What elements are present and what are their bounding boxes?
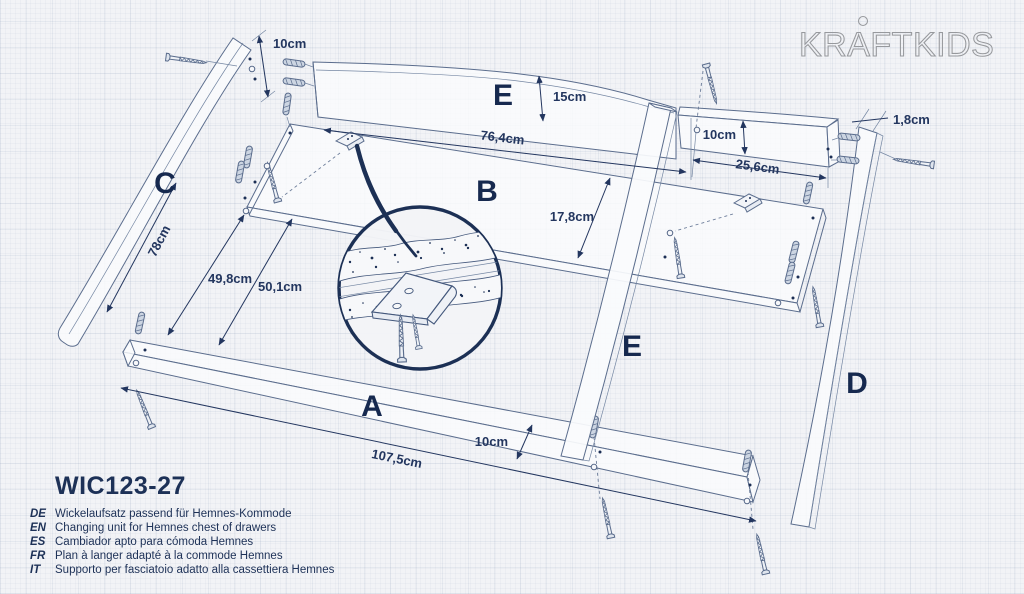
translation-text: Supporto per fasciatoio adatto alla cass… xyxy=(55,563,334,577)
logo-teepee-ring-icon xyxy=(859,17,868,26)
translation-text: Plan à langer adapté à la commode Hemnes xyxy=(55,549,283,563)
translation-text: Changing unit for Hemnes chest of drawer… xyxy=(55,521,276,535)
dowel-icon xyxy=(283,58,306,67)
screw-icon xyxy=(753,533,770,575)
translation-list: DE Wickelaufsatz passend für Hemnes-Komm… xyxy=(30,507,334,577)
dim-label: 10cm xyxy=(703,127,736,142)
dim-label: 10cm xyxy=(475,434,508,449)
translation-text: Cambiador apto para cómoda Hemnes xyxy=(55,535,253,549)
product-code: WIC123-27 xyxy=(55,472,334,501)
language-code: ES xyxy=(30,535,55,549)
screw-icon xyxy=(599,497,615,539)
product-info: WIC123-27 DE Wickelaufsatz passend für H… xyxy=(30,472,334,577)
part-label-d: D xyxy=(846,367,868,400)
language-code: EN xyxy=(30,521,55,535)
language-code: FR xyxy=(30,549,55,563)
dowel-icon xyxy=(838,133,861,141)
part-label-a: A xyxy=(361,390,383,423)
dim-label: 49,8cm xyxy=(208,271,252,286)
dim-label: 10cm xyxy=(273,36,306,51)
part-label-e-top: E xyxy=(493,79,513,112)
part-label-e-mid: E xyxy=(622,330,642,363)
translation-row-es: ES Cambiador apto para cómoda Hemnes xyxy=(30,535,334,549)
translation-text: Wickelaufsatz passend für Hemnes-Kommode xyxy=(55,507,292,521)
translation-row-it: IT Supporto per fasciatoio adatto alla c… xyxy=(30,563,334,577)
language-code: DE xyxy=(30,507,55,521)
dowel-icon xyxy=(283,77,306,86)
dowel-icon xyxy=(282,93,291,116)
dim-label: 15cm xyxy=(553,89,586,104)
dim-label: 1,8cm xyxy=(893,112,930,127)
dowel-icon xyxy=(135,312,145,335)
screw-icon xyxy=(809,286,824,328)
dimension-1-8cm: 1,8cm xyxy=(852,109,930,131)
translation-row-fr: FR Plan à langer adapté à la commode Hem… xyxy=(30,549,334,563)
language-code: IT xyxy=(30,563,55,577)
dim-label: 78cm xyxy=(145,223,174,259)
dim-label: 17,8cm xyxy=(550,209,594,224)
translation-row-en: EN Changing unit for Hemnes chest of dra… xyxy=(30,521,334,535)
dowel-icon xyxy=(235,161,245,184)
screw-icon xyxy=(165,53,207,66)
part-label-b: B xyxy=(476,175,498,208)
blueprint-page: 10cm 15cm 76,4cm 10cm 25,6cm 1,8cm 17,8c… xyxy=(0,0,1024,594)
brand-logo: KRAFTKIDS xyxy=(799,17,994,65)
dimension-49-8cm: 49,8cm xyxy=(168,215,252,335)
translation-row-de: DE Wickelaufsatz passend für Hemnes-Komm… xyxy=(30,507,334,521)
brand-logo-text: KRAFTKIDS xyxy=(799,26,994,64)
screw-icon xyxy=(893,156,935,169)
screw-icon xyxy=(702,63,720,105)
part-label-c: C xyxy=(154,167,176,200)
dowel-icon xyxy=(803,182,813,205)
panel-d xyxy=(791,127,883,529)
dim-label: 50,1cm xyxy=(258,279,302,294)
